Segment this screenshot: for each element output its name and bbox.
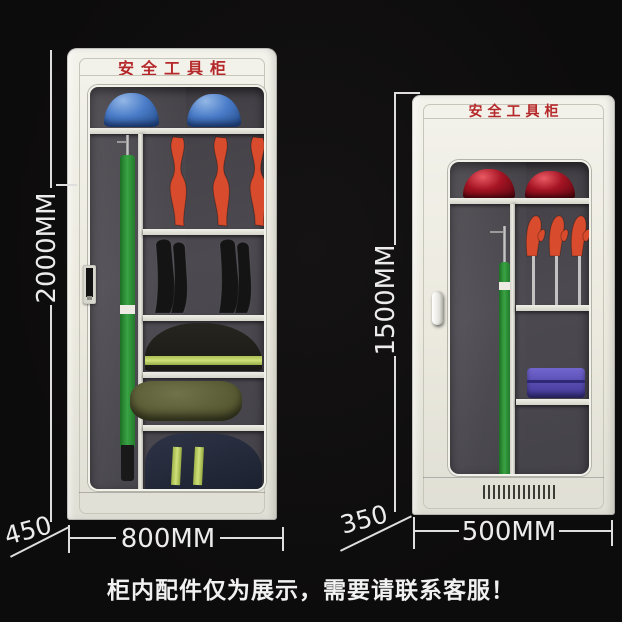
height-label-large: 2000MM xyxy=(33,188,61,308)
height-dim-line-upper-small xyxy=(394,92,396,245)
rod-hook xyxy=(117,141,127,143)
panel-seam xyxy=(423,477,604,478)
shelf xyxy=(143,315,264,321)
width-dim-tick-left-small xyxy=(413,517,415,549)
product-photo-safety-cabinets: 安全工具柜 xyxy=(0,0,622,622)
ventilation-grille xyxy=(483,485,556,499)
width-dim-line-right-small xyxy=(559,530,612,532)
uniform-icon xyxy=(145,433,262,489)
shelf xyxy=(143,372,264,378)
small-cabinet-glass-window xyxy=(448,160,591,476)
small-sign-underline xyxy=(423,118,604,119)
shelf xyxy=(450,198,589,204)
lock-slot xyxy=(86,268,93,297)
small-cabinet: 安全工具柜 xyxy=(412,95,615,515)
height-dim-line-lower-small xyxy=(394,356,396,512)
door-handle xyxy=(432,291,443,325)
insulated-boots-group xyxy=(143,235,264,315)
column-divider xyxy=(510,204,515,474)
blue-helmet-icon xyxy=(187,94,241,127)
height-dim-tick-top-small xyxy=(395,92,420,94)
shelf xyxy=(516,399,589,405)
rod-metal-tip xyxy=(503,226,506,264)
reflective-stripe xyxy=(193,447,204,485)
width-dim-line-left-large xyxy=(70,537,116,539)
shelf xyxy=(90,128,264,134)
width-dim-tick-left-large xyxy=(68,525,70,553)
height-label-small: 1500MM xyxy=(372,240,400,360)
width-dim-line-left-small xyxy=(415,530,459,532)
height-dim-line-upper-large xyxy=(50,50,52,188)
width-label-large: 800MM xyxy=(118,524,218,554)
tool-bag-icon xyxy=(130,381,242,421)
rod-band xyxy=(499,282,510,290)
shelf xyxy=(516,305,589,311)
door-lock xyxy=(83,265,96,304)
rod-metal-tip xyxy=(126,135,129,157)
panel-seam xyxy=(79,492,265,493)
reflective-stripe xyxy=(171,447,182,485)
rod-hook xyxy=(490,231,503,233)
height-dim-line-lower-large xyxy=(50,305,52,522)
large-cabinet: 安全工具柜 xyxy=(67,48,277,520)
tool-case-seam xyxy=(527,380,585,383)
width-label-small: 500MM xyxy=(459,517,559,547)
red-helmet-icon xyxy=(525,171,575,199)
shelf xyxy=(143,425,264,431)
insulated-gloves-group xyxy=(143,135,264,229)
caption-text: 柜内配件仅为展示，需要请联系客服！ xyxy=(0,571,622,605)
safety-clothing-icon xyxy=(145,323,262,371)
large-cabinet-glass-window xyxy=(88,85,266,491)
tool-case-icon xyxy=(527,368,585,398)
lock-button xyxy=(87,296,92,300)
insulated-operating-rod-icon xyxy=(499,262,510,474)
width-dim-tick-right-small xyxy=(611,520,613,546)
insulated-gloves-stand-group xyxy=(516,212,589,312)
rod-band xyxy=(120,305,135,314)
rod-handle-end xyxy=(121,445,134,481)
width-dim-tick-right-large xyxy=(282,527,284,551)
reflective-stripe xyxy=(145,356,262,365)
large-sign-underline xyxy=(79,75,265,76)
width-dim-line-right-large xyxy=(220,537,282,539)
height-dim-tick-large xyxy=(56,184,77,186)
depth-label-small: 350 xyxy=(331,498,396,542)
